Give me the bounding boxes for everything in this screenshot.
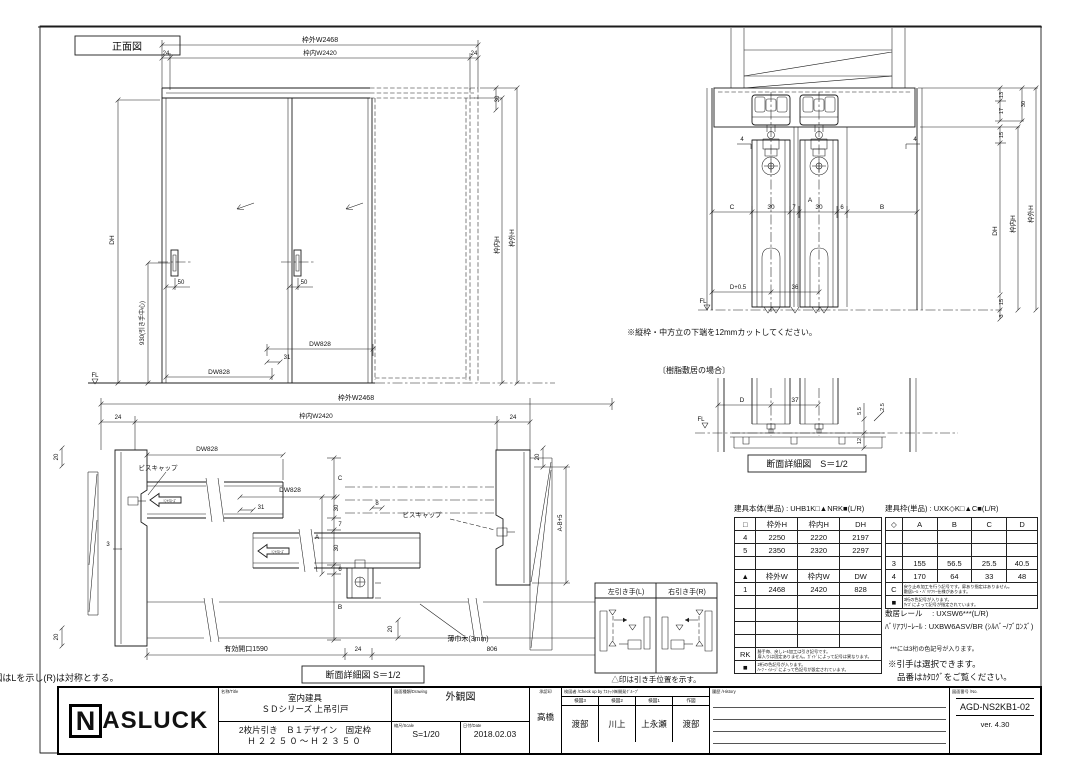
table-cell <box>902 531 937 544</box>
table-cell: C <box>972 518 1007 531</box>
fl-label: FL <box>697 417 705 423</box>
dim-15-bottom: 15 <box>999 299 1005 305</box>
dim-37: 37 <box>791 397 799 404</box>
nasluck-logo: NASLUCK <box>59 688 218 753</box>
dim-30-b: 30 <box>815 204 823 211</box>
table-row <box>735 609 882 622</box>
table-row <box>735 557 882 570</box>
note-line: 敷居ﾚｰﾙ・ﾊﾞﾘｱﾌﾘｰ仕様があります。 <box>904 589 1036 594</box>
table-cell: 25.5 <box>972 557 1007 570</box>
dim-inner-height: 枠内H <box>492 236 501 254</box>
dim-24-bottom: 24 <box>355 647 362 653</box>
table-row: ◇ABCD <box>886 518 1038 531</box>
table-cell: 155 <box>902 557 937 570</box>
table-cell: 2297 <box>840 544 882 557</box>
drawing-number-header: 図面番号 /No. <box>950 688 1040 696</box>
dim-5-5: 5.5 <box>857 407 863 415</box>
drawing-number: AGD-NS2KB1-02 <box>950 699 1040 715</box>
drawing-type-cell: 図面種類/Drawing 外観図 縮尺/Scale S=1/20 日付/Date… <box>392 688 530 753</box>
table-cell <box>756 596 798 609</box>
logo-letter-n: N <box>69 704 103 738</box>
table-cell: ▲ <box>735 570 756 583</box>
dim-50-left: 50 <box>178 280 185 286</box>
plan-caption: 断面詳細図 S＝1/2 <box>325 669 400 680</box>
dim-d05: D+0.5 <box>730 285 747 291</box>
dim-dh: DH <box>109 235 116 245</box>
dim-50-right: 50 <box>301 280 308 286</box>
check-cell: 検図者 /Check up by ﾅｽﾗｯｸ㈱開発ｸﾞﾙｰﾌﾟ 検図3 検図2 … <box>562 688 710 753</box>
dim-dw-1: DW828 <box>196 446 218 453</box>
dim-30-top: 30 <box>495 95 501 102</box>
drawing-number-cell: 図面番号 /No. AGD-NS2KB1-02 ver. 4.30 <box>950 688 1040 753</box>
check-label: 検図1 <box>636 697 673 705</box>
chain-30-a: 30 <box>334 504 340 511</box>
dim-inner-width: 枠内W2420 <box>299 411 333 420</box>
dim-30-a: 30 <box>767 204 775 211</box>
barrier-free-rail-spec: ﾊﾞﾘｱﾌﾘｰﾚｰﾙ : UXBW6ASV/BR (ｼﾙﾊﾞｰ/ﾌﾞﾛﾝｽﾞ) <box>885 621 1033 632</box>
table-row: 5235023202297 <box>735 544 882 557</box>
table-row: □枠外H枠内HDH <box>735 518 882 531</box>
check-label: 検図2 <box>599 697 636 705</box>
chain-b: B <box>338 604 342 611</box>
table-cell <box>886 531 903 544</box>
dim-3: 3 <box>999 314 1005 317</box>
dim-20-baseboard: 20 <box>388 625 394 632</box>
table-cell <box>735 557 756 570</box>
table-cell: 枠外W <box>756 570 798 583</box>
table-cell <box>902 544 937 557</box>
dim-dw-upper: DW828 <box>309 341 331 348</box>
dim-806: 806 <box>487 646 498 653</box>
drawing-name-line3: 2枚片引き Ｂ１デザイン 固定枠 <box>219 725 391 736</box>
history-line <box>713 696 946 708</box>
table-cell: DW <box>840 570 882 583</box>
table-row: ▲枠外W枠内WDW <box>735 570 882 583</box>
table-cell <box>937 531 972 544</box>
check-name: 渡部 <box>562 706 599 742</box>
table-cell <box>937 544 972 557</box>
dim-dh: DH <box>992 226 999 236</box>
section-view: 4 4 C 30 7 30 6 B A D+0.5 36 FL 13 17 15… <box>627 28 1038 337</box>
dim-outer-width: 枠外W2468 <box>338 393 374 402</box>
table-cell <box>798 622 840 635</box>
scale-value: S=1/20 <box>392 729 460 740</box>
dim-3: 3 <box>106 542 110 548</box>
table-row <box>735 596 882 609</box>
dim-effective-opening: 有効開口1590 <box>224 644 268 653</box>
history-line <box>713 732 946 744</box>
table-cell <box>756 622 798 635</box>
handle-right-label: 右引き手(R) <box>668 587 706 596</box>
table-cell <box>798 596 840 609</box>
table-cell: 枠外H <box>756 518 798 531</box>
dim-24-right: 24 <box>471 51 478 57</box>
door-body-table-grid: □枠外H枠内HDH 4225022202197 5235023202297 ▲枠… <box>734 517 882 674</box>
table-cell: □ <box>735 518 756 531</box>
soft-close-label: ｿﾌﾄｸﾛｰｽﾞ <box>271 549 285 554</box>
note-line: ｻｲｽﾞによって記号が指定されています。 <box>904 602 1036 607</box>
drawing-version: ver. 4.30 <box>950 716 1040 729</box>
note-line: 扉入りは固定ありません。ｶﾞｲﾄﾞによって記号は異なります。 <box>757 654 880 659</box>
history-cell: 履歴 /History <box>710 688 950 753</box>
screw-cap-label-1: ビスキャップ <box>139 463 179 472</box>
handle-left-label: 左引き手(L) <box>608 587 645 596</box>
logo-cell: NASLUCK <box>59 688 219 753</box>
table-cell: 40.5 <box>1007 557 1038 570</box>
door-body-table-title: 建具本体(単品) : UHB1K□▲NRK■(L/R) <box>734 503 882 514</box>
sill-caption: 断面詳細図 S＝1/2 <box>766 458 848 469</box>
table-cell: 2350 <box>756 544 798 557</box>
table-cell <box>840 622 882 635</box>
drawing-sheet: 正面図 枠外W2468 枠内W2420 24 24 50 50 DW828 31… <box>0 0 1080 764</box>
table-cell <box>1007 544 1038 557</box>
table-cell <box>756 635 798 648</box>
table-cell: 2197 <box>840 531 882 544</box>
approver-name: 高橋 <box>530 696 561 738</box>
catalog-note: 品番はｶﾀﾛｸﾞをご覧ください。 <box>897 671 1012 683</box>
table-note-cell: 3桁の色記号が入ります。ｻｲｽﾞによって記号が指定されています。 <box>902 596 1037 609</box>
dim-36: 36 <box>792 285 799 291</box>
table-cell: 48 <box>1007 570 1038 583</box>
table-cell <box>972 531 1007 544</box>
table-cell <box>840 557 882 570</box>
dim-7: 7 <box>792 205 796 211</box>
table-cell: 1 <box>735 583 756 596</box>
table-note-cell: 2桁の色記号が入ります。ﾊｰﾌ・ｲﾒｰｼﾞによって色記号が設定されています。 <box>756 661 882 674</box>
approval-cell: 承認印 高橋 <box>530 688 562 753</box>
table-row: C戻り止め加工を行う記号です。扉あり指定はありません。敷居ﾚｰﾙ・ﾊﾞﾘｱﾌﾘｰ… <box>886 583 1038 596</box>
table-cell <box>798 609 840 622</box>
table-cell <box>735 635 756 648</box>
title-block: NASLUCK 名称/Title 室内建具 ＳＤシリーズ 上吊引戸 2枚片引き … <box>57 686 1042 755</box>
logo-text: ASLUCK <box>102 707 208 735</box>
table-cell <box>798 635 840 648</box>
table-cell: D <box>1007 518 1038 531</box>
table-cell: ■ <box>886 596 903 609</box>
table-note-cell: 勝手毎、戻しﾚｰﾙ加工は引き記号です。扉入りは固定ありません。ｶﾞｲﾄﾞによって… <box>756 648 882 661</box>
table-cell <box>756 557 798 570</box>
dim-inner-width: 枠内W2420 <box>303 48 337 57</box>
door-body-table: 建具本体(単品) : UHB1K□▲NRK■(L/R) □枠外H枠内HDH 42… <box>734 503 882 674</box>
check-name: 上永瀬 <box>636 706 673 742</box>
handle-caption: △印は引き手位置を示す。 <box>611 674 700 684</box>
baseboard-label: 薄巾木(3mm) <box>447 634 488 643</box>
drawing-name-line2: ＳＤシリーズ 上吊引戸 <box>219 704 391 715</box>
table-cell: 5 <box>735 544 756 557</box>
table-cell: ◇ <box>886 518 903 531</box>
table-row: 315556.525.540.5 <box>886 557 1038 570</box>
screw-cap-label-2: ビスキャップ <box>403 510 443 519</box>
dim-b: B <box>880 204 884 211</box>
table-cell: 2468 <box>756 583 798 596</box>
table-row <box>735 635 882 648</box>
dim-17: 17 <box>999 108 1005 114</box>
dim-c: C <box>730 204 735 211</box>
dim-outer-height: 枠外H <box>1026 205 1035 223</box>
handle-choice-note: ※引手は選択できます。 <box>888 658 981 670</box>
table-row: 4170643348 <box>886 570 1038 583</box>
dim-20-bottom-left: 20 <box>54 633 60 640</box>
table-cell <box>756 609 798 622</box>
resin-sill-detail: 〔樹脂敷居の場合〕 D 37 FL 5.5 2.5 12 断面詳細図 S＝1/2 <box>658 365 958 472</box>
table-cell: 170 <box>902 570 937 583</box>
table-row: ■2桁の色記号が入ります。ﾊｰﾌ・ｲﾒｰｼﾞによって色記号が設定されています。 <box>735 661 882 674</box>
table-cell <box>735 622 756 635</box>
approval-header: 承認印 <box>530 688 561 696</box>
front-view-title: 正面図 <box>112 41 142 53</box>
drawing-name-line4: Ｈ２２５０～Ｈ２３５０ <box>219 736 391 747</box>
check-header: 検図者 /Check up by ﾅｽﾗｯｸ㈱開発ｸﾞﾙｰﾌﾟ <box>562 688 709 696</box>
table-cell: 枠内W <box>798 570 840 583</box>
dim-12: 12 <box>857 438 863 444</box>
table-cell <box>840 596 882 609</box>
scale-cell: 縮尺/Scale S=1/20 <box>392 722 460 754</box>
dim-a: A <box>808 197 813 204</box>
check-name: 川上 <box>599 706 636 742</box>
table-row: RK勝手毎、戻しﾚｰﾙ加工は引き記号です。扉入りは固定ありません。ｶﾞｲﾄﾞによ… <box>735 648 882 661</box>
table-cell: 2220 <box>798 531 840 544</box>
table-row <box>886 531 1038 544</box>
table-cell: DH <box>840 518 882 531</box>
table-cell <box>1007 531 1038 544</box>
chain-c: C <box>338 476 343 482</box>
dim-15: 15 <box>999 132 1005 138</box>
dim-930-handle-center: 930(引き手中心) <box>138 301 146 345</box>
chain-a: A <box>315 534 320 541</box>
table-cell: 4 <box>886 570 903 583</box>
table-cell: 33 <box>972 570 1007 583</box>
door-frame-table-grid: ◇ABCD 315556.525.540.5 4170643348 C戻り止め加… <box>885 517 1038 609</box>
dim-13: 13 <box>999 92 1005 98</box>
table-row: 124682420828 <box>735 583 882 596</box>
table-cell: A <box>902 518 937 531</box>
history-line <box>713 708 946 720</box>
table-row: ■3桁の色記号が入ります。ｻｲｽﾞによって記号が指定されています。 <box>886 596 1038 609</box>
table-cell: 828 <box>840 583 882 596</box>
dim-31: 31 <box>284 355 291 361</box>
dim-24-left: 24 <box>163 51 170 57</box>
door-frame-table-title: 建具枠(単品) : UXK◇K□▲C■(L/R) <box>885 503 1038 514</box>
dim-a-b-5: A-B+5 <box>558 514 564 532</box>
dim-2-5: 2.5 <box>880 403 886 411</box>
fl-label: FL <box>699 299 707 305</box>
table-cell: ■ <box>735 661 756 674</box>
table-cell <box>886 544 903 557</box>
dim-20-top-right: 20 <box>535 453 541 460</box>
dim-31: 31 <box>258 505 265 511</box>
dim-outer-height: 枠外H <box>507 229 516 247</box>
title-cell: 名称/Title 室内建具 ＳＤシリーズ 上吊引戸 2枚片引き Ｂ１デザイン 固… <box>219 688 392 753</box>
dim-outer-width: 枠外W2468 <box>302 35 338 44</box>
handle-selection-box: 左引き手(L) 右引き手(R) △印は引き手位置を示す。 <box>595 583 717 684</box>
dim-4-left: 4 <box>740 137 744 143</box>
table-cell <box>735 596 756 609</box>
dim-8: 8 <box>375 501 379 507</box>
note-line: ﾊｰﾌ・ｲﾒｰｼﾞによって色記号が設定されています。 <box>757 667 880 672</box>
table-cell: 2250 <box>756 531 798 544</box>
dim-20-top-left: 20 <box>54 453 60 460</box>
table-row: 4225022202197 <box>735 531 882 544</box>
drawing-name-line1: 室内建具 <box>219 693 391 704</box>
table-cell <box>840 635 882 648</box>
check-label: 作図 <box>673 697 709 705</box>
dim-d: D <box>740 397 745 404</box>
table-cell: 2320 <box>798 544 840 557</box>
table-cell: B <box>937 518 972 531</box>
table-cell <box>735 609 756 622</box>
dim-dw-lower: DW828 <box>208 369 230 376</box>
dim-24-left: 24 <box>115 415 122 421</box>
dim-inner-height: 枠内H <box>1008 215 1017 233</box>
color-code-note: ***には3桁の色記号が入ります。 <box>890 644 978 653</box>
date-value: 2018.02.03 <box>461 729 529 740</box>
table-cell <box>972 544 1007 557</box>
dim-30-right: 30 <box>1021 101 1027 107</box>
sill-rail-spec: 敷居レール : UXSW6***(L/R) <box>885 608 988 619</box>
table-cell: 64 <box>937 570 972 583</box>
plan-view: 枠外W2468 枠内W2420 24 24 20 20 3 ビスキャップ ｿﾌﾄ… <box>0 393 614 683</box>
table-row <box>735 622 882 635</box>
dim-6: 6 <box>840 205 844 211</box>
table-cell: 枠内H <box>798 518 840 531</box>
table-cell: 56.5 <box>937 557 972 570</box>
fl-label: FL <box>91 373 99 379</box>
chain-7: 7 <box>338 522 342 528</box>
plan-note: ※本図はLを示し(R)は対称とする。 <box>0 672 119 683</box>
dim-dw-2: DW828 <box>279 487 301 494</box>
history-header: 履歴 /History <box>710 688 949 696</box>
dim-24-right: 24 <box>510 415 517 421</box>
table-cell <box>798 557 840 570</box>
chain-30-b: 30 <box>334 544 340 551</box>
section-note: ※縦枠・中方立の下端を12mmカットしてください。 <box>627 327 817 337</box>
table-cell: 4 <box>735 531 756 544</box>
table-cell: C <box>886 583 903 596</box>
table-cell <box>840 609 882 622</box>
table-row <box>886 544 1038 557</box>
table-cell: 3 <box>886 557 903 570</box>
table-note-cell: 戻り止め加工を行う記号です。扉あり指定はありません。敷居ﾚｰﾙ・ﾊﾞﾘｱﾌﾘｰ仕… <box>902 583 1037 596</box>
soft-close-label: ｿﾌﾄｸﾛｰｽﾞ <box>163 498 177 503</box>
front-view: 正面図 枠外W2468 枠内W2420 24 24 50 50 DW828 31… <box>75 35 555 385</box>
sill-title: 〔樹脂敷居の場合〕 <box>658 365 730 375</box>
door-frame-table: 建具枠(単品) : UXK◇K□▲C■(L/R) ◇ABCD 315556.52… <box>885 503 1038 609</box>
table-cell: 2420 <box>798 583 840 596</box>
check-label: 検図3 <box>562 697 599 705</box>
history-line <box>713 720 946 732</box>
table-cell: RK <box>735 648 756 661</box>
date-cell: 日付/Date 2018.02.03 <box>460 722 529 754</box>
check-name: 渡部 <box>673 706 709 742</box>
